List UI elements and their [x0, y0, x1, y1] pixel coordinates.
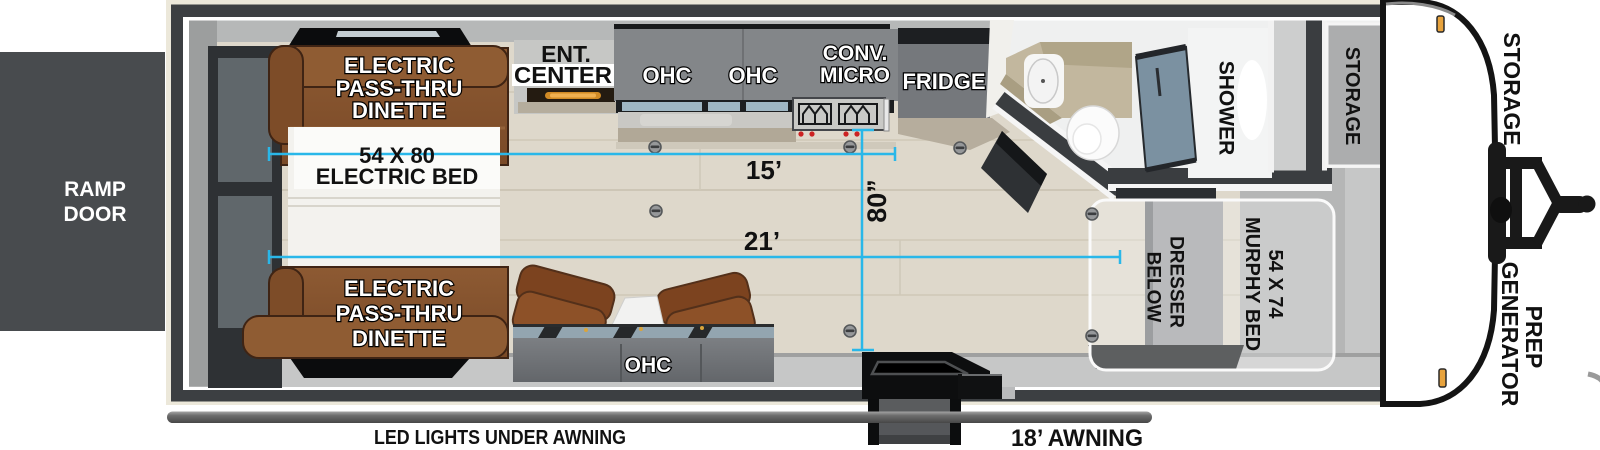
svg-text:DRESSER: DRESSER [1166, 236, 1187, 328]
svg-text:ELECTRIC: ELECTRIC [344, 276, 454, 301]
svg-text:OHC: OHC [625, 354, 672, 377]
svg-text:PASS-THRU: PASS-THRU [336, 301, 463, 326]
svg-text:21’: 21’ [744, 226, 780, 256]
svg-text:MICRO: MICRO [820, 64, 890, 87]
svg-text:18’ AWNING: 18’ AWNING [1011, 425, 1143, 450]
svg-text:FRIDGE: FRIDGE [902, 69, 985, 94]
svg-text:RAMP: RAMP [64, 178, 126, 201]
svg-text:CENTER: CENTER [514, 62, 612, 88]
svg-text:STORAGE: STORAGE [1341, 47, 1363, 146]
svg-text:OHC: OHC [729, 63, 778, 88]
svg-text:CONV.: CONV. [823, 42, 888, 65]
svg-text:PREP: PREP [1521, 306, 1547, 369]
svg-text:DINETTE: DINETTE [352, 98, 446, 123]
svg-text:15’: 15’ [746, 155, 782, 185]
svg-text:80”: 80” [862, 179, 892, 223]
svg-text:BELOW: BELOW [1143, 252, 1164, 323]
svg-text:DOOR: DOOR [64, 203, 127, 226]
svg-text:ELECTRIC BED: ELECTRIC BED [316, 164, 479, 189]
svg-text:DINETTE: DINETTE [352, 326, 446, 351]
svg-text:STORAGE: STORAGE [1499, 32, 1525, 145]
svg-text:SHOWER: SHOWER [1215, 61, 1238, 156]
svg-text:54 X 74: 54 X 74 [1264, 250, 1286, 320]
svg-text:OHC: OHC [643, 63, 692, 88]
svg-text:MURPHY BED: MURPHY BED [1241, 217, 1263, 351]
svg-text:GENERATOR: GENERATOR [1497, 262, 1523, 407]
svg-text:LED LIGHTS UNDER AWNING: LED LIGHTS UNDER AWNING [374, 427, 626, 449]
svg-text:ELECTRIC: ELECTRIC [344, 53, 454, 78]
